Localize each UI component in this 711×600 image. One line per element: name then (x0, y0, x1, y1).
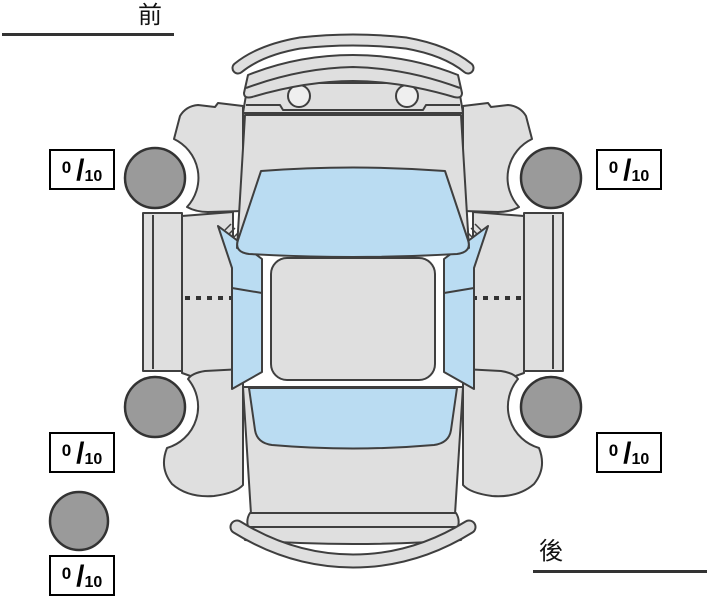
rating-max: 10 (85, 451, 103, 469)
left-door-outer-panel (143, 213, 182, 371)
car-condition-diagram: 前 後 0 / 10 0 / 10 0 / 10 0 / 10 0 / 10 (0, 0, 711, 600)
rating-max: 10 (85, 168, 103, 186)
rear-left-tire (125, 377, 185, 437)
rear-left-tire-rating: 0 / 10 (49, 432, 115, 473)
spare-tire (50, 492, 108, 550)
rear-window (249, 388, 457, 449)
front-underline (2, 33, 174, 36)
rear-label: 後 (539, 540, 563, 564)
windshield (237, 168, 469, 258)
front-left-tire (125, 148, 185, 208)
rating-separator: / (623, 437, 631, 471)
rating-separator: / (76, 154, 84, 188)
rating-value: 0 (62, 564, 71, 584)
rating-value: 0 (609, 441, 618, 461)
front-label: 前 (138, 4, 162, 28)
front-left-tire-rating: 0 / 10 (49, 149, 115, 190)
rating-separator: / (76, 437, 84, 471)
rating-max: 10 (632, 451, 650, 469)
left-front-fender (174, 103, 243, 212)
roof (271, 258, 435, 380)
spare-tire-rating: 0 / 10 (49, 555, 115, 596)
rating-separator: / (76, 560, 84, 594)
rating-value: 0 (62, 441, 71, 461)
rating-value: 0 (609, 158, 618, 178)
front-right-tire-rating: 0 / 10 (596, 149, 662, 190)
rating-max: 10 (632, 168, 650, 186)
rating-max: 10 (85, 574, 103, 592)
rating-value: 0 (62, 158, 71, 178)
car-top-view-diagram (0, 0, 711, 600)
rating-separator: / (623, 154, 631, 188)
rear-underline (533, 570, 707, 573)
rear-right-tire-rating: 0 / 10 (596, 432, 662, 473)
